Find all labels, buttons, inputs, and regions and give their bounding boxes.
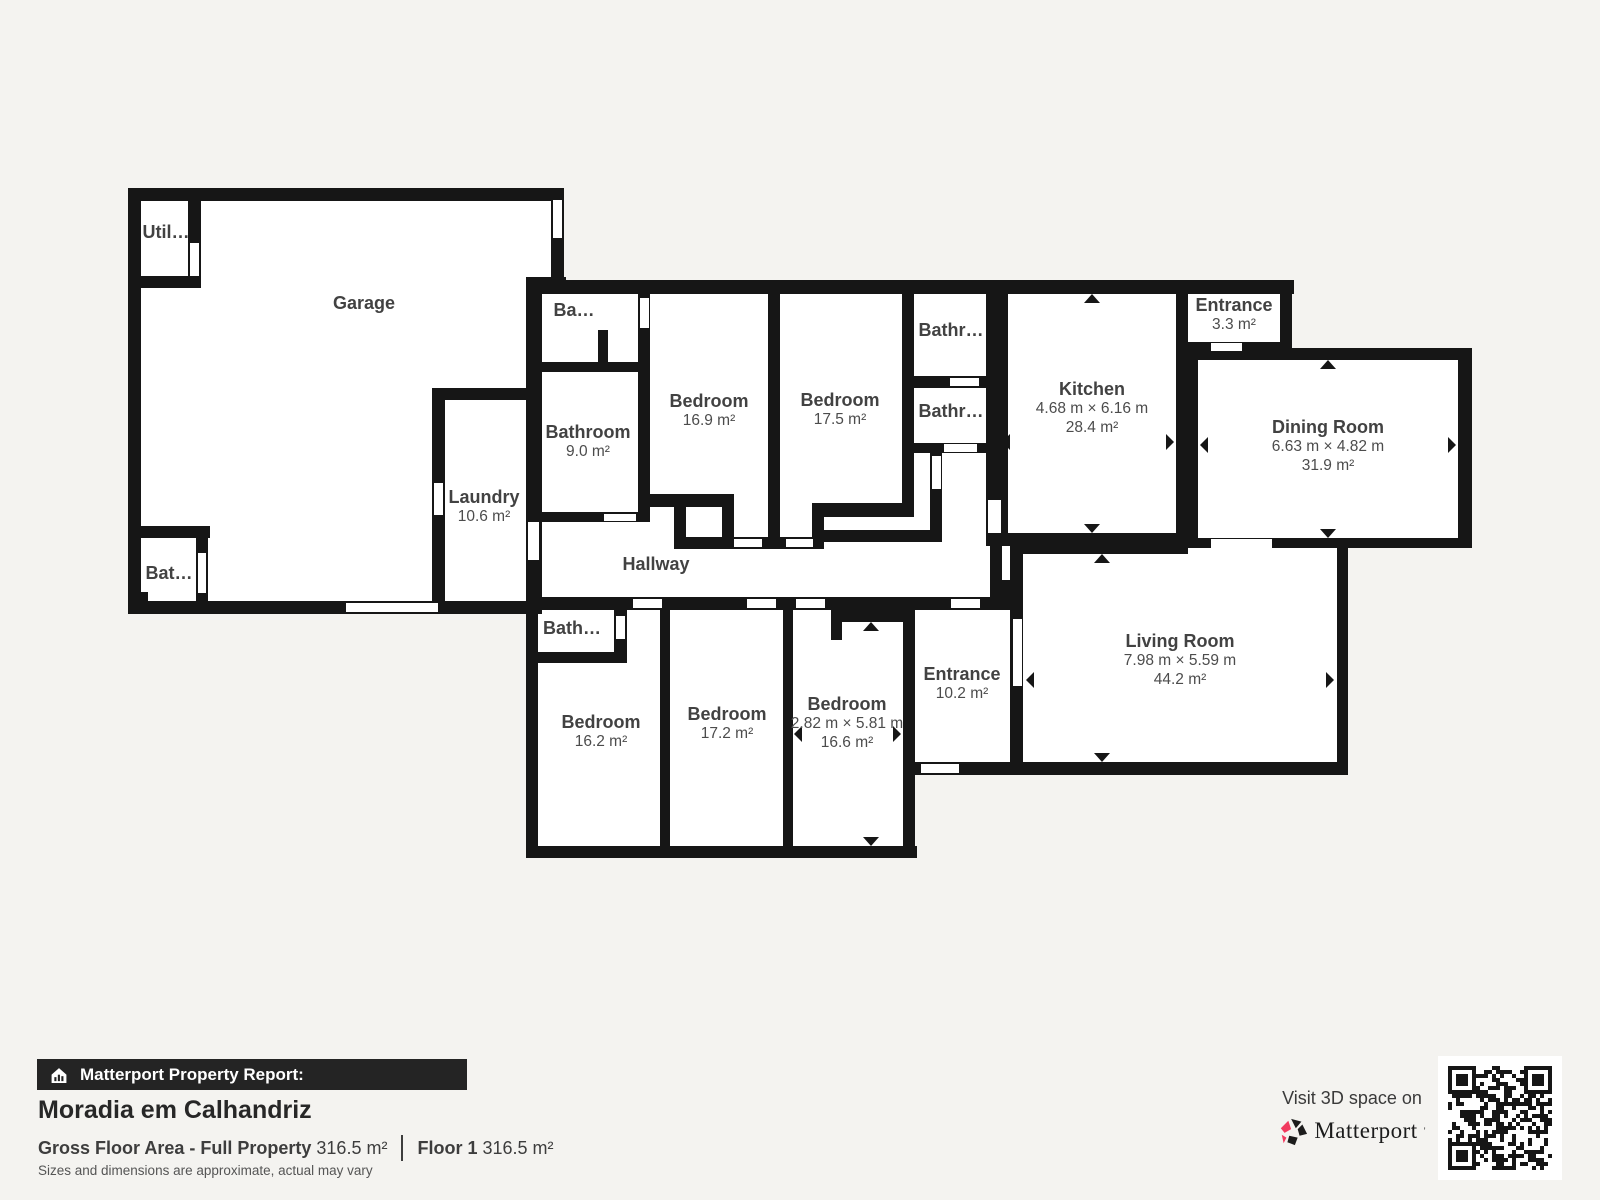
- room-area: 28.4 m²: [1036, 418, 1148, 437]
- room-label-bathroom-r2: Bathr…: [918, 401, 983, 421]
- room-dims: 4.68 m × 6.16 m: [1036, 399, 1148, 418]
- visit-text: Visit 3D space on: [1252, 1088, 1452, 1109]
- room-label-entrance-102: Entrance 10.2 m²: [923, 664, 1000, 703]
- room-name: Bedroom: [687, 704, 766, 724]
- room-name: Bedroom: [791, 694, 903, 714]
- matterport-logo: Matterport’: [1252, 1116, 1452, 1146]
- room-label-bathroom-9: Bathroom 9.0 m²: [546, 422, 631, 461]
- room-dims: 7.98 m × 5.59 m: [1124, 651, 1236, 670]
- room-label-bathroom-top: Ba…: [553, 300, 594, 320]
- report-header-bar: Matterport Property Report:: [37, 1059, 467, 1090]
- gross-area-value: 316.5 m²: [316, 1138, 387, 1158]
- room-area: 9.0 m²: [546, 442, 631, 461]
- room-label-laundry: Laundry 10.6 m²: [448, 487, 519, 526]
- room-label-bedroom-166: Bedroom 2.82 m × 5.81 m 16.6 m²: [791, 694, 903, 752]
- room-dims: 6.63 m × 4.82 m: [1272, 437, 1384, 456]
- room-area: 31.9 m²: [1272, 456, 1384, 475]
- room-name: Bath…: [543, 618, 601, 638]
- room-label-bedroom-169: Bedroom 16.9 m²: [669, 391, 748, 430]
- room-name: Dining Room: [1272, 417, 1384, 437]
- room-area: 17.2 m²: [687, 724, 766, 743]
- room-label-bath-lower: Bath…: [543, 618, 601, 638]
- room-name: Bat…: [145, 563, 192, 583]
- room-label-dining: Dining Room 6.63 m × 4.82 m 31.9 m²: [1272, 417, 1384, 475]
- matterport-wordmark: Matterport: [1314, 1118, 1417, 1144]
- floor-area-stats: Gross Floor Area - Full Property 316.5 m…: [38, 1135, 554, 1161]
- floor-value: 316.5 m²: [482, 1138, 553, 1158]
- room-dims: 2.82 m × 5.81 m: [791, 714, 903, 733]
- room-area: 16.9 m²: [669, 411, 748, 430]
- room-label-garage-bath: Bat…: [145, 563, 192, 583]
- room-label-living: Living Room 7.98 m × 5.59 m 44.2 m²: [1124, 631, 1236, 689]
- room-area: 16.6 m²: [791, 733, 903, 752]
- room-label-bedroom-172: Bedroom 17.2 m²: [687, 704, 766, 743]
- room-label-garage: Garage: [333, 293, 395, 313]
- room-name: Hallway: [622, 554, 689, 574]
- room-name: Bathr…: [918, 401, 983, 421]
- visit-3d-cta: Visit 3D space on Matterport’: [1252, 1088, 1452, 1146]
- room-area: 44.2 m²: [1124, 670, 1236, 689]
- disclaimer-text: Sizes and dimensions are approximate, ac…: [38, 1163, 373, 1178]
- property-name: Moradia em Calhandriz: [38, 1096, 312, 1125]
- room-name: Entrance: [923, 664, 1000, 684]
- room-name: Ba…: [553, 300, 594, 320]
- room-label-hallway: Hallway: [622, 554, 689, 574]
- room-label-kitchen: Kitchen 4.68 m × 6.16 m 28.4 m²: [1036, 379, 1148, 437]
- brand-mark: ’: [1424, 1126, 1426, 1136]
- floorplan-canvas: [0, 0, 1600, 1200]
- room-name: Kitchen: [1036, 379, 1148, 399]
- room-area: 17.5 m²: [800, 410, 879, 429]
- room-name: Garage: [333, 293, 395, 313]
- matterport-floorplan-report: Garage Util… Bat… Laundry 10.6 m² Ba… Ba…: [0, 0, 1600, 1200]
- room-area: 3.3 m²: [1195, 315, 1272, 334]
- room-name: Util…: [143, 222, 190, 242]
- room-label-bedroom-175: Bedroom 17.5 m²: [800, 390, 879, 429]
- qr-code: [1438, 1056, 1562, 1180]
- room-name: Bathroom: [546, 422, 631, 442]
- room-label-bedroom-162: Bedroom 16.2 m²: [561, 712, 640, 751]
- room-name: Bedroom: [561, 712, 640, 732]
- room-area: 16.2 m²: [561, 732, 640, 751]
- room-area: 10.6 m²: [448, 507, 519, 526]
- report-bar-label: Matterport Property Report:: [80, 1065, 304, 1085]
- room-name: Bedroom: [669, 391, 748, 411]
- room-label-bathroom-r1: Bathr…: [918, 320, 983, 340]
- room-label-entrance-3: Entrance 3.3 m²: [1195, 295, 1272, 334]
- room-name: Entrance: [1195, 295, 1272, 315]
- building-icon: [49, 1066, 69, 1084]
- stats-separator: [401, 1135, 403, 1161]
- room-label-utility: Util…: [143, 222, 190, 242]
- room-area: 10.2 m²: [923, 684, 1000, 703]
- room-name: Laundry: [448, 487, 519, 507]
- room-name: Bathr…: [918, 320, 983, 340]
- floor-label: Floor 1: [417, 1138, 477, 1158]
- room-name: Bedroom: [800, 390, 879, 410]
- matterport-pinwheel-icon: [1278, 1116, 1308, 1146]
- room-name: Living Room: [1124, 631, 1236, 651]
- gross-area-label: Gross Floor Area - Full Property: [38, 1138, 311, 1158]
